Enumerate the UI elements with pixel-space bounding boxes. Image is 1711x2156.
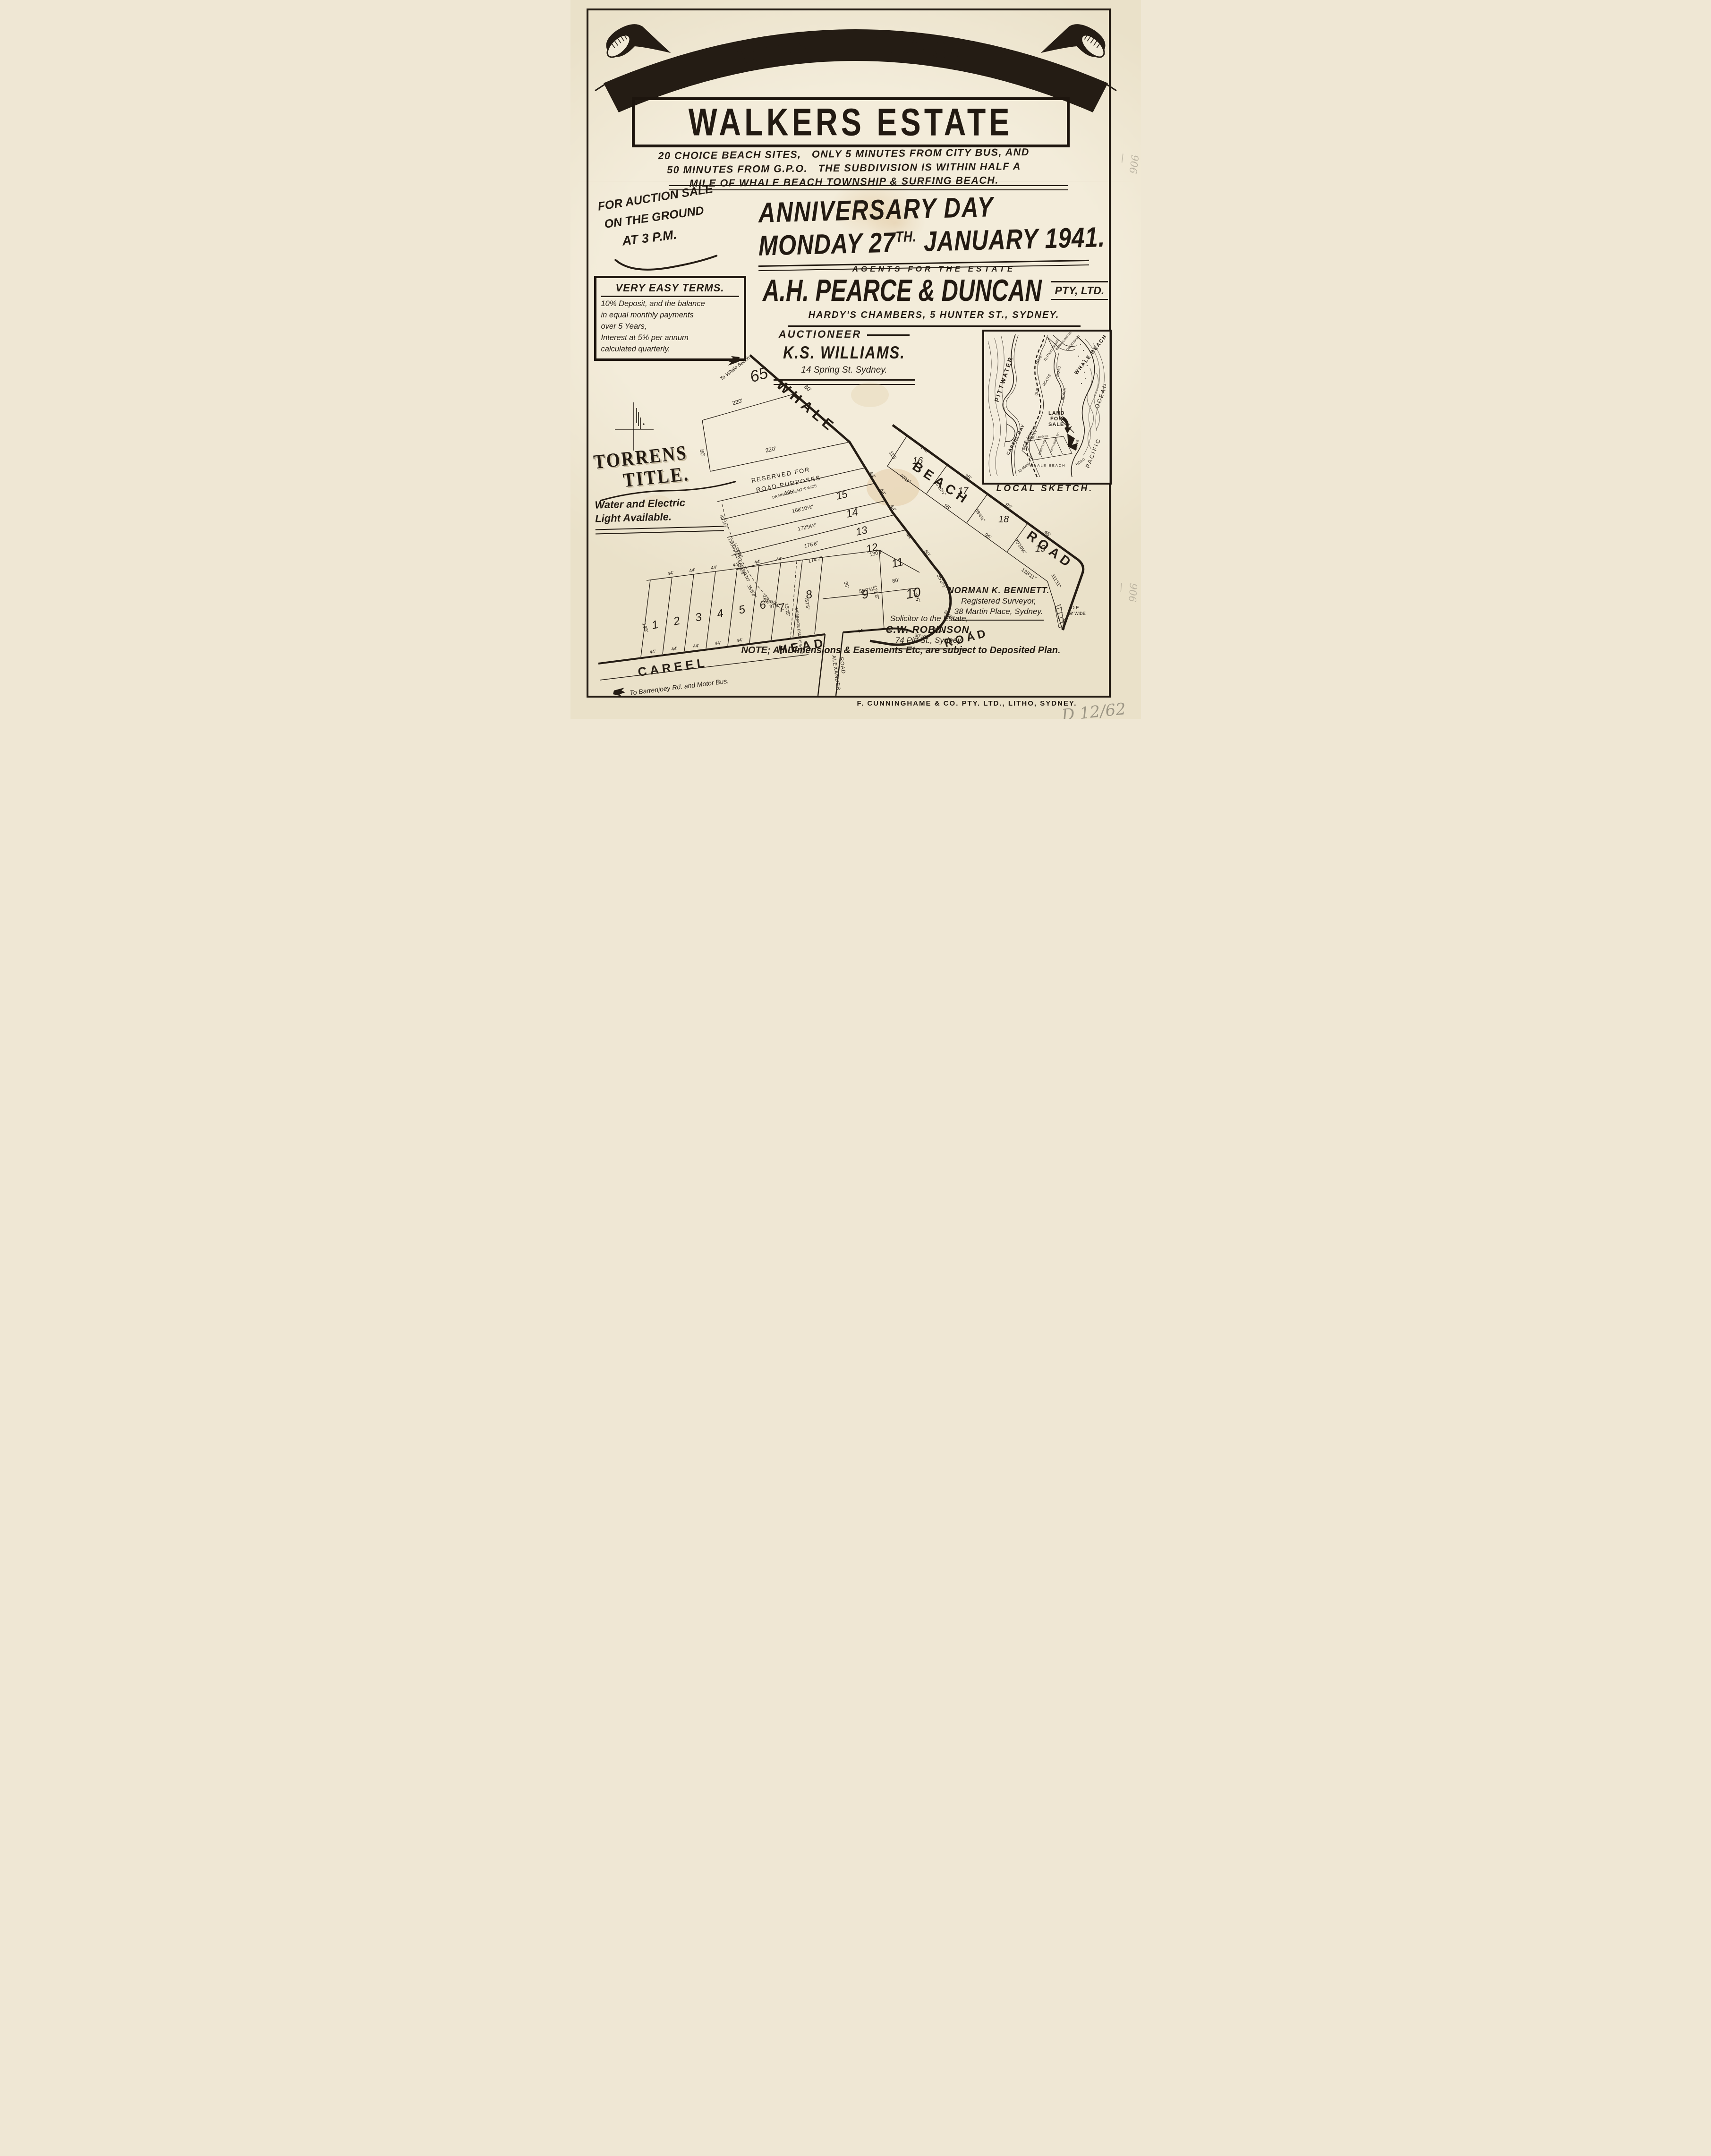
- agents-rule: [788, 325, 1081, 327]
- terms-title: VERY EASY TERMS.: [601, 282, 739, 297]
- suffix-rule-bottom: [1051, 299, 1108, 300]
- plan-road-alexander-2: ROAD: [838, 657, 846, 674]
- surveyor-name: NORMAN K. BENNETT.: [921, 586, 1077, 596]
- plan-dim: 115': [887, 450, 897, 461]
- event-date-rest: JANUARY 1941.: [916, 222, 1105, 258]
- plan-dim: 44': [710, 565, 717, 571]
- plan-dim: 128'11": [1020, 567, 1037, 582]
- solicitor-name: C.W. ROBINSON.: [849, 624, 1010, 636]
- solicitor-address: 74 Pitt St., Sydney.: [849, 636, 1010, 645]
- plan-dim: 44': [714, 640, 721, 647]
- plan-dim: 95': [983, 532, 992, 541]
- plan-dim: 68'4½": [973, 508, 986, 523]
- plan-dim: 174'7": [807, 555, 822, 564]
- utilities-block: Water and Electric Light Available.: [595, 495, 724, 534]
- plan-dim: 220': [731, 397, 743, 407]
- estate-subtitle: WALKERS ESTATE: [688, 100, 1013, 145]
- terms-line: 10% Deposit, and the balance: [601, 299, 739, 308]
- plan-dim: 44': [692, 643, 699, 649]
- plan-label-to-barrenjoey: To Barrenjoey Rd. and Motor Bus.: [629, 677, 729, 696]
- plan-lot-number: 18: [998, 514, 1009, 525]
- banner-title: WHALE BEACH: [733, 27, 978, 70]
- to-barrenjoey-pointer: To Barrenjoey Rd. and Motor Bus.: [613, 677, 729, 696]
- plan-dim: 44': [775, 556, 783, 562]
- event-date-sup: TH.: [895, 228, 917, 246]
- plan-dim: 44': [667, 571, 674, 577]
- subtitle-box: WALKERS ESTATE: [632, 97, 1070, 147]
- plan-lot-65-number: 65: [748, 364, 770, 386]
- plan-lot-number: 1: [650, 618, 659, 632]
- plan-dim: 44': [671, 646, 678, 652]
- pencil-scribble: [1087, 368, 1099, 449]
- terms-box: VERY EASY TERMS. 10% Deposit, and the ba…: [594, 276, 746, 361]
- pencil-mark-margin-2: 906—: [1114, 582, 1139, 612]
- poster-whale-beach: WHALE BEACH WALKERS ESTATE 20 CHOICE BEA…: [570, 0, 1141, 719]
- agents-block: AGENTS FOR THE ESTATE A.H. PEARCE & DUNC…: [769, 264, 1099, 327]
- event-block: ANNIVERSARY DAY MONDAY 27TH. JANUARY 194…: [758, 196, 1103, 268]
- solicitor-block: Solicitor to the Estate, C.W. ROBINSON. …: [849, 614, 1010, 649]
- agents-name: A.H. PEARCE & DUNCAN: [763, 273, 1042, 308]
- surveyor-title: Registered Surveyor,: [921, 597, 1077, 606]
- pencil-mark-margin-1: 906—: [1115, 153, 1140, 181]
- plan-dim: 80': [892, 577, 899, 584]
- auction-block: FOR AUCTION SALE ON THE GROUND AT 3 P.M.: [598, 200, 758, 277]
- plan-dim: 80': [803, 383, 813, 393]
- plan-lot-number: 5: [737, 603, 746, 617]
- drainage-easement-mid: [791, 561, 797, 638]
- north-mark-icon: [615, 402, 654, 451]
- stain: [851, 383, 889, 407]
- plan-lot-number: 2: [672, 614, 681, 628]
- to-whale-beach-pointer: To Whale Beach: [719, 355, 751, 382]
- plan-lot-number: 16: [912, 456, 923, 466]
- agents-suffix: PTY, LTD.: [1055, 284, 1105, 297]
- plan-dim: 44': [689, 568, 696, 574]
- plan-dim: 95': [1004, 502, 1013, 511]
- plan-road-careel: CAREEL: [637, 656, 708, 679]
- agents-suffix-block: PTY, LTD.: [1051, 279, 1108, 302]
- note-line: NOTE; All Dimensions & Easements Etc, ar…: [726, 645, 1076, 656]
- terms-line: in equal monthly payments: [601, 311, 739, 320]
- plan-lot-number: 19: [1035, 544, 1046, 554]
- plan-lot-number: 13: [854, 524, 868, 538]
- terms-line: over 5 Years,: [601, 322, 739, 331]
- event-date-main: MONDAY 27: [758, 227, 895, 262]
- plan-lot-number: 11: [890, 555, 904, 571]
- printer-credit: F. CUNNINGHAME & CO. PTY. LTD., LITHO, S…: [835, 699, 1099, 707]
- auctioneer-dash: [867, 334, 910, 336]
- plan-dim: 140': [919, 444, 930, 455]
- plan-dim: 44': [732, 562, 739, 568]
- plan-dim: 44': [736, 638, 743, 644]
- plan-dim: 220': [765, 445, 776, 454]
- plan-lot-number: 17: [958, 486, 969, 496]
- plan-dim: 95': [943, 503, 952, 511]
- terms-line: Interest at 5% per annum: [601, 333, 739, 342]
- plan-dim: 176'8": [803, 540, 818, 549]
- auctioneer-heading: AUCTIONEER: [779, 328, 861, 340]
- plan-dim: 50': [922, 549, 931, 558]
- plan-dim: 36': [843, 581, 850, 589]
- plan-dim: 44': [649, 649, 656, 655]
- plan-dim: 95': [963, 473, 972, 481]
- agents-address: HARDY'S CHAMBERS, 5 HUNTER ST., SYDNEY.: [769, 310, 1099, 321]
- auction-flourish: [611, 249, 721, 277]
- plan-dim: 44': [754, 559, 761, 565]
- solicitor-heading: Solicitor to the Estate,: [849, 614, 1010, 623]
- plan-dim: 165': [641, 622, 649, 633]
- plan-dim: 168'10½": [791, 504, 813, 514]
- plan-lot-number: 3: [694, 611, 703, 624]
- plan-lot-number: 14: [845, 506, 859, 520]
- plan-dim: 121'5": [871, 585, 880, 600]
- plan-lot-number: 4: [715, 607, 724, 621]
- plan-dim: 172'9¼": [797, 522, 816, 532]
- suffix-rule-top: [1051, 281, 1108, 282]
- plan-drainage-label: DRAINAGE EASEMENT: [727, 538, 751, 583]
